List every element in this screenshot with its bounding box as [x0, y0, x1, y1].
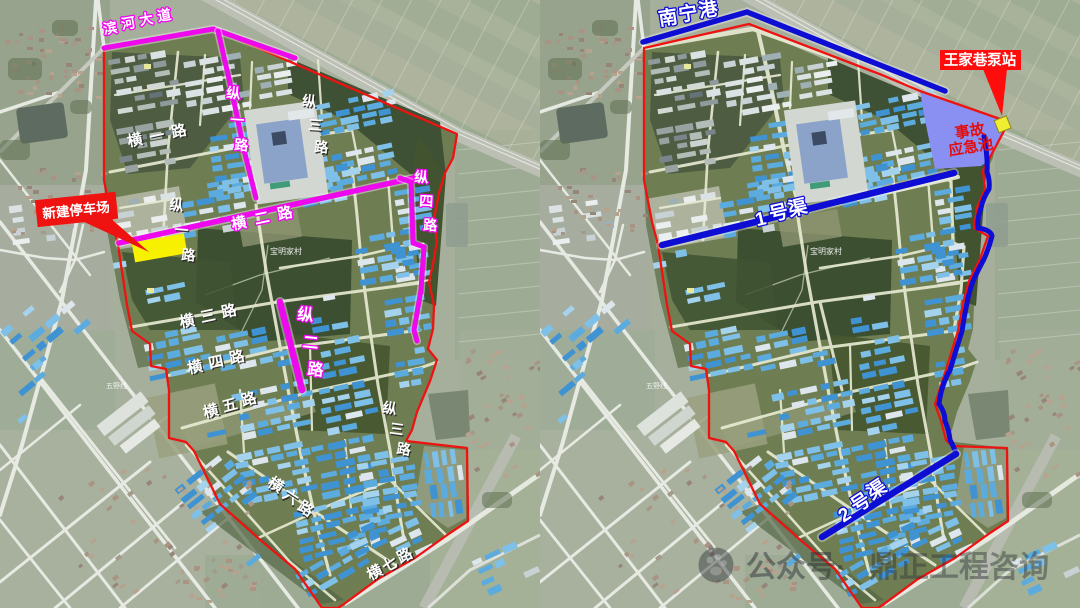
- svg-text:滨: 滨: [102, 19, 119, 37]
- svg-text:纵: 纵: [169, 196, 184, 213]
- svg-text:纵: 纵: [414, 169, 429, 186]
- svg-text:南: 南: [657, 6, 679, 31]
- svg-text:纵: 纵: [382, 399, 398, 417]
- svg-text:四: 四: [419, 193, 434, 210]
- svg-text:道: 道: [156, 6, 173, 24]
- svg-text:路: 路: [234, 137, 250, 154]
- svg-text:鼎正工程咨询: 鼎正工程咨询: [869, 551, 1049, 584]
- svg-text:大: 大: [138, 10, 155, 28]
- svg-text:路: 路: [314, 139, 330, 156]
- svg-text:路: 路: [423, 217, 439, 234]
- svg-text:三: 三: [308, 117, 323, 134]
- svg-text:纵: 纵: [226, 85, 241, 102]
- svg-text:王家巷泵站: 王家巷泵站: [944, 51, 1017, 69]
- svg-text:二: 二: [302, 334, 320, 353]
- svg-text:公众号·: 公众号·: [746, 551, 846, 584]
- svg-text:纵: 纵: [302, 93, 317, 110]
- svg-text:一: 一: [174, 221, 189, 238]
- svg-text:河: 河: [120, 14, 137, 32]
- svg-text:一: 一: [230, 112, 245, 129]
- svg-text:路: 路: [181, 246, 197, 263]
- svg-text:三: 三: [389, 420, 405, 438]
- svg-text:路: 路: [307, 359, 326, 380]
- svg-text:宁: 宁: [677, 1, 699, 27]
- svg-text:纵: 纵: [297, 304, 315, 325]
